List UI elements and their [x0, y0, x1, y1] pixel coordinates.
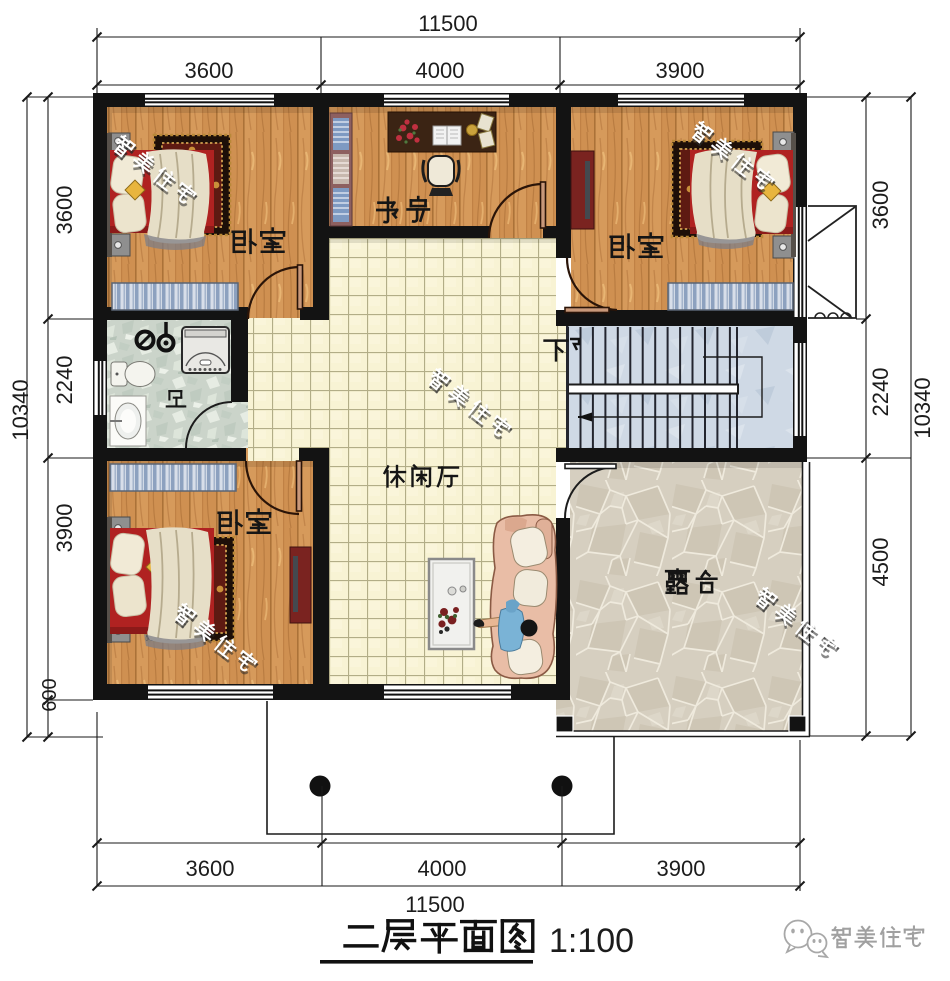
svg-text:3600: 3600 [52, 186, 77, 235]
svg-text:3900: 3900 [657, 856, 706, 881]
svg-text:11500: 11500 [418, 11, 478, 36]
svg-text:3900: 3900 [52, 504, 77, 553]
svg-text:3600: 3600 [868, 181, 893, 230]
svg-text:1:100: 1:100 [549, 922, 634, 960]
svg-text:10340: 10340 [910, 377, 935, 438]
svg-text:3900: 3900 [656, 58, 705, 83]
svg-text:3600: 3600 [185, 58, 234, 83]
svg-text:4500: 4500 [868, 538, 893, 587]
svg-text:4000: 4000 [416, 58, 465, 83]
svg-text:2240: 2240 [52, 356, 77, 405]
svg-text:10340: 10340 [8, 379, 33, 440]
svg-text:11500: 11500 [405, 892, 465, 917]
svg-text:3600: 3600 [186, 856, 235, 881]
svg-text:4000: 4000 [418, 856, 467, 881]
svg-text:2240: 2240 [868, 368, 893, 417]
svg-text:600: 600 [39, 678, 61, 711]
